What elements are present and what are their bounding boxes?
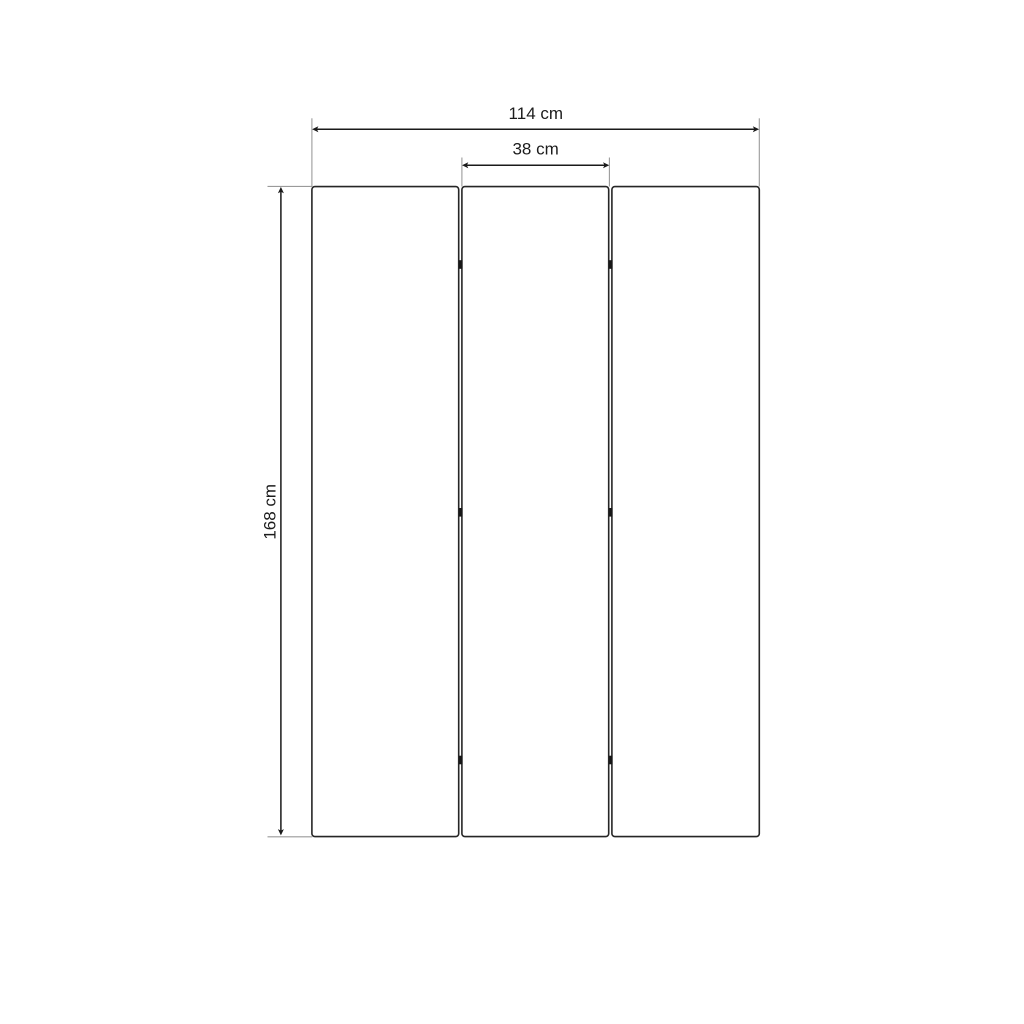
svg-text:38 cm: 38 cm xyxy=(512,140,558,159)
svg-text:114 cm: 114 cm xyxy=(509,104,564,123)
svg-text:168 cm: 168 cm xyxy=(260,484,279,540)
